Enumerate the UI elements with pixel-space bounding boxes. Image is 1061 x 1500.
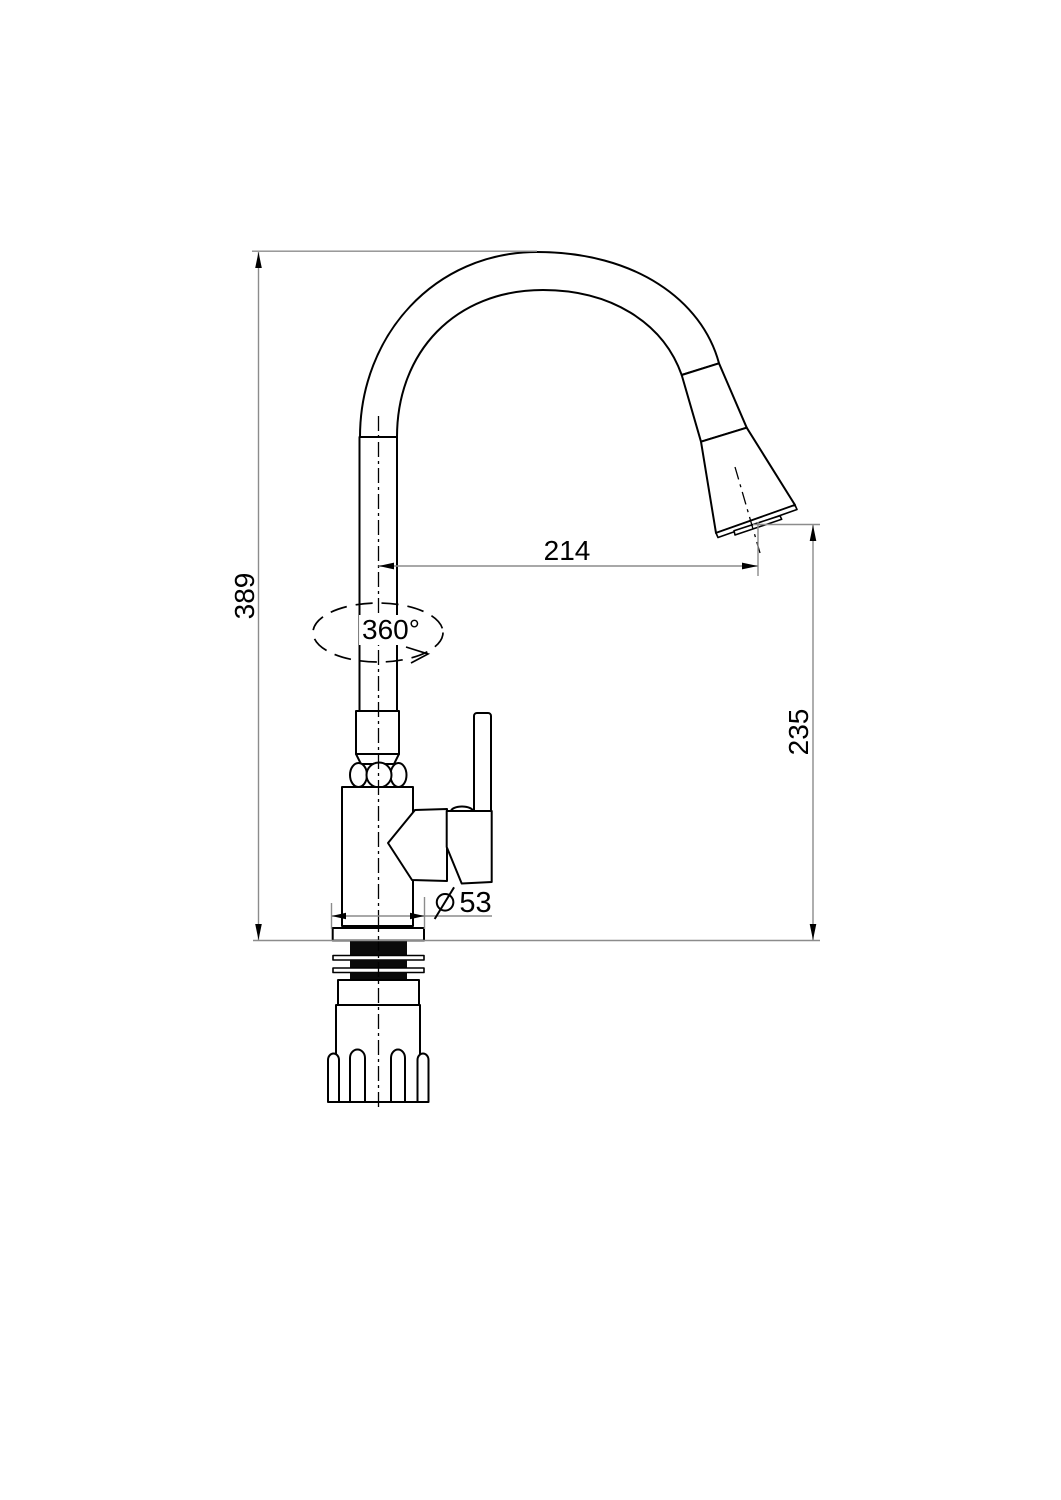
- rotation-angle-label: 360°: [359, 615, 423, 645]
- technical-drawing-canvas: [0, 0, 1061, 1500]
- flute-outer-right: [418, 1054, 429, 1102]
- faucet-technical-drawing-page: 389 214 235 360° 53: [0, 0, 1061, 1500]
- dimension-label-spout-reach: 214: [544, 537, 591, 565]
- flute-inner-left: [350, 1050, 365, 1103]
- dimension-arrowheads: [255, 252, 816, 940]
- dimension-linework: [252, 251, 820, 940]
- handle-cap: [447, 811, 492, 884]
- arrow-height-bottom: [255, 924, 262, 940]
- spray-head: [682, 363, 797, 537]
- gooseneck-spout: [360, 252, 719, 437]
- arrow-reach-right: [742, 563, 758, 570]
- rotation-arrow-icon: [406, 647, 428, 663]
- arrow-height-top: [255, 252, 262, 268]
- arrow-outlet-bottom: [810, 924, 817, 940]
- dimension-label-overall-height: 389: [231, 573, 259, 620]
- swivel-collar: [356, 711, 399, 754]
- base-diameter-value: 53: [459, 889, 491, 918]
- bead-right: [391, 763, 407, 787]
- diameter-symbol-icon: [432, 883, 456, 921]
- faucet-outline: [328, 252, 797, 1102]
- arrow-diameter-right: [410, 913, 425, 920]
- bead-left: [350, 763, 367, 787]
- arrow-diameter-left: [332, 913, 347, 920]
- arrow-outlet-top: [810, 525, 817, 541]
- flute-inner-right: [391, 1050, 405, 1103]
- dimension-label-outlet-height: 235: [785, 709, 813, 756]
- flute-outer-left: [328, 1054, 339, 1102]
- centerlines: [379, 416, 761, 1108]
- dimension-label-base-diameter: 53: [432, 883, 491, 921]
- handle-lever-rod: [474, 713, 491, 813]
